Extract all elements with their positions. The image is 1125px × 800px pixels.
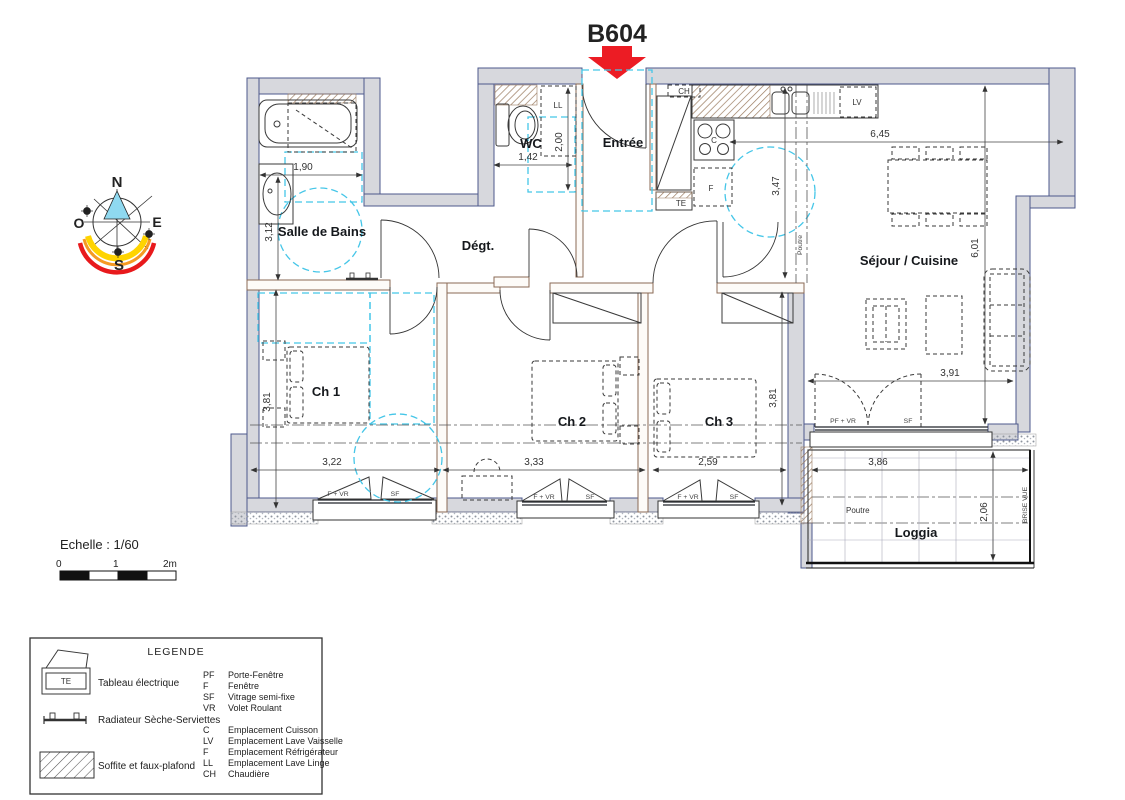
scale-tick-0: 0	[56, 559, 62, 570]
abbr-f-label: Fenêtre	[228, 681, 259, 691]
abbr-ch: CH	[203, 769, 216, 779]
abbr-c: C	[203, 725, 210, 735]
loggia-poutre-label: Poutre	[846, 506, 870, 515]
coffee-table	[926, 296, 962, 354]
legend-box: LEGENDE TE Tableau électrique Radiateur …	[30, 638, 343, 794]
beam-poutre-label-kitchen: Poutre	[797, 235, 804, 255]
compass-rose: N O E S	[74, 174, 162, 274]
window-ch2-fvr-label: F + VR	[533, 494, 554, 501]
dim-kitchen-height: 3,47	[771, 176, 782, 196]
svg-text:TE: TE	[61, 677, 71, 686]
dim-living-height: 6,01	[970, 238, 981, 258]
bedroom2-furniture	[462, 357, 639, 500]
compass-e-label: E	[152, 214, 161, 230]
kitchen-sink	[772, 92, 789, 114]
window-ch3-fvr-label: F + VR	[677, 494, 698, 501]
abbr-sf: SF	[203, 692, 215, 702]
legend-soffit-symbol	[40, 752, 94, 778]
dim-loggia-height: 2,06	[979, 502, 990, 522]
dim-living-width: 6,45	[870, 129, 890, 140]
f-label: F	[709, 184, 714, 193]
window-ch1-sf-label: SF	[391, 491, 400, 498]
abbr-vr-label: Volet Roulant	[228, 703, 282, 713]
compass-o-label: O	[74, 215, 85, 231]
floor-plan-drawing: B604 N O E S	[0, 0, 1125, 800]
floor-plan-page: B604 N O E S	[0, 0, 1125, 800]
window-ch1-fvr-label: F + VR	[327, 491, 348, 498]
window-sejour-pfvr-label: PF + VR	[830, 418, 856, 425]
lv-label: LV	[852, 98, 862, 107]
loggia-structure: Poutre BRISE VUE	[806, 450, 1034, 568]
brise-vue-label: BRISE VUE	[1022, 486, 1029, 523]
compass-n-label: N	[112, 174, 123, 191]
abbr-f2: F	[203, 747, 209, 757]
dim-ch3-height: 3,81	[768, 388, 779, 408]
legend-item-soffit-label: Soffite et faux-plafond	[98, 761, 195, 772]
scale-bar: Echelle : 1/60 0 1 2m	[56, 537, 177, 580]
bathroom-fixtures	[259, 100, 378, 279]
abbr-sf-label: Vitrage semi-fixe	[228, 692, 295, 702]
abbr-pf: PF	[203, 670, 215, 680]
window-ch2-sf-label: SF	[586, 494, 595, 501]
abbr-f: F	[203, 681, 209, 691]
scale-tick-1: 1	[113, 559, 119, 570]
desk	[462, 476, 512, 500]
abbr-f2-label: Emplacement Réfrigérateur	[228, 747, 338, 757]
dim-ch2-width: 3,33	[524, 457, 544, 468]
abbr-lv: LV	[203, 736, 213, 746]
room-label-wc: WC	[520, 136, 542, 151]
dim-ch1-width: 3,22	[322, 457, 342, 468]
window-sejour-sf-label: SF	[904, 418, 913, 425]
toilet	[496, 104, 509, 146]
dim-bath-height: 3,12	[264, 222, 275, 242]
towel-radiator	[346, 273, 378, 279]
window-ch3-sf-label: SF	[730, 494, 739, 501]
dim-bath-width: 1,90	[293, 162, 313, 173]
abbr-vr: VR	[203, 703, 216, 713]
abbr-lv-label: Emplacement Lave Vaisselle	[228, 736, 343, 746]
dim-loggia-width: 3,86	[868, 457, 888, 468]
abbr-ll: LL	[203, 758, 213, 768]
corridor-wardrobes	[553, 293, 793, 323]
room-label-ch1: Ch 1	[312, 384, 340, 399]
bed-ch2	[532, 361, 618, 441]
legend-title: LEGENDE	[147, 646, 204, 658]
apartment-title: B604	[587, 20, 647, 48]
entrance-arrow-icon	[588, 46, 646, 79]
compass-north-needle	[104, 191, 130, 219]
dining-table	[888, 160, 987, 213]
scale-label: Echelle : 1/60	[60, 537, 139, 552]
abbr-ll-label: Emplacement Lave Linge	[228, 758, 330, 768]
legend-item-te-label: Tableau électrique	[98, 678, 180, 689]
room-label-hall: Dégt.	[462, 238, 495, 253]
dim-ch1-height: 3,81	[262, 392, 273, 412]
room-label-ch2: Ch 2	[558, 414, 586, 429]
c-label: C	[711, 136, 717, 145]
abbr-ch-label: Chaudière	[228, 769, 270, 779]
room-label-ch3: Ch 3	[705, 414, 733, 429]
te-label: TE	[676, 199, 686, 208]
room-label-living: Séjour / Cuisine	[860, 253, 958, 268]
compass-s-label: S	[114, 257, 124, 274]
abbr-pf-label: Porte-Fenêtre	[228, 670, 284, 680]
room-label-entry: Entrée	[603, 135, 643, 150]
abbr-c-label: Emplacement Cuisson	[228, 725, 318, 735]
dim-door-width: 3,91	[940, 368, 960, 379]
legend-item-radiator-label: Radiateur Sèche-Serviettes	[98, 715, 220, 726]
dim-wc-width: 1,42	[518, 152, 538, 163]
room-label-bathroom: Salle de Bains	[278, 224, 366, 239]
drainboard	[814, 92, 834, 114]
scale-tick-2: 2m	[163, 559, 177, 570]
dim-ch3-width: 2,59	[698, 457, 718, 468]
dim-wc-height: 2,00	[554, 132, 565, 152]
ll-label: LL	[554, 101, 563, 110]
ch-label: CH	[678, 87, 690, 96]
room-label-loggia: Loggia	[895, 525, 938, 540]
